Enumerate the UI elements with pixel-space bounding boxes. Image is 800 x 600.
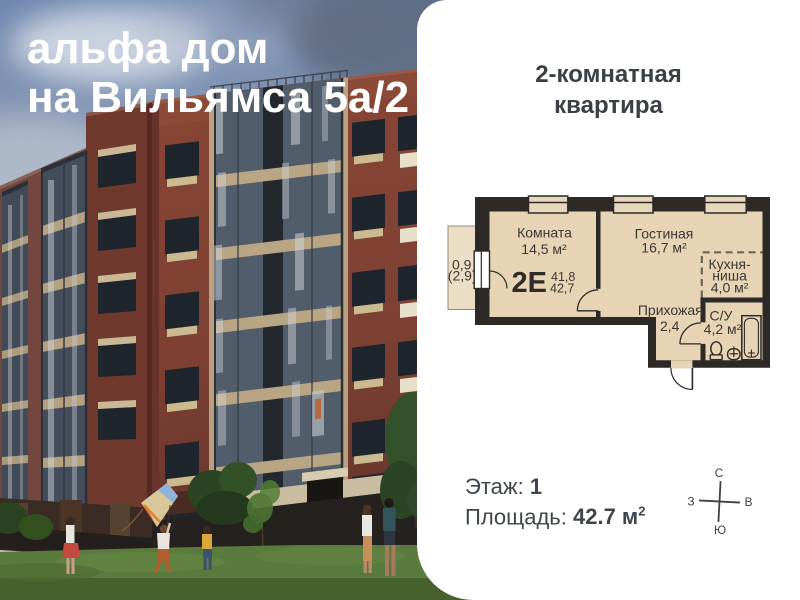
svg-text:В: В xyxy=(744,495,752,509)
svg-text:14,5 м²: 14,5 м² xyxy=(521,241,567,257)
svg-text:16,7 м²: 16,7 м² xyxy=(641,240,687,256)
svg-text:4,2 м²: 4,2 м² xyxy=(704,321,742,337)
svg-text:Ю: Ю xyxy=(714,523,726,537)
svg-text:2,4: 2,4 xyxy=(660,318,680,334)
svg-text:(2,9): (2,9) xyxy=(448,268,477,284)
svg-text:Комната: Комната xyxy=(517,225,572,241)
svg-text:2Е: 2Е xyxy=(512,267,547,299)
svg-text:С: С xyxy=(715,466,724,480)
svg-text:4,0 м²: 4,0 м² xyxy=(711,280,749,296)
svg-text:З: З xyxy=(687,495,694,509)
svg-text:42,7: 42,7 xyxy=(550,282,574,296)
svg-text:Прихожая: Прихожая xyxy=(638,302,703,318)
